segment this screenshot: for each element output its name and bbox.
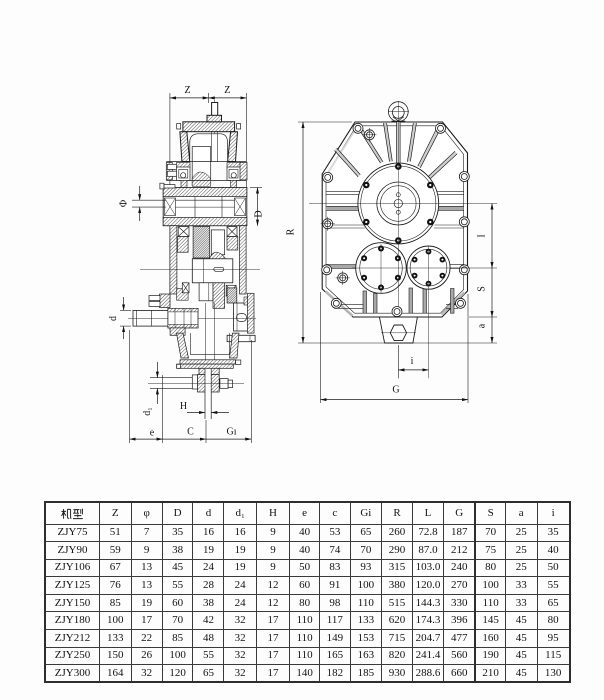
svg-text:d₁: d₁ bbox=[142, 407, 153, 416]
svg-text:S: S bbox=[477, 286, 488, 292]
svg-text:a: a bbox=[477, 323, 488, 328]
svg-text:D: D bbox=[254, 210, 265, 217]
svg-text:R: R bbox=[286, 228, 297, 235]
svg-text:e: e bbox=[150, 428, 155, 439]
svg-text:H: H bbox=[180, 401, 187, 412]
svg-text:Z: Z bbox=[224, 85, 230, 96]
svg-text:d: d bbox=[108, 316, 119, 321]
svg-text:Φ: Φ bbox=[119, 200, 130, 207]
svg-text:I: I bbox=[477, 234, 488, 237]
svg-text:Gı: Gı bbox=[227, 427, 237, 438]
svg-text:i: i bbox=[411, 356, 414, 367]
svg-text:Z: Z bbox=[184, 85, 190, 96]
svg-text:G: G bbox=[392, 385, 399, 396]
svg-text:C: C bbox=[187, 427, 194, 438]
